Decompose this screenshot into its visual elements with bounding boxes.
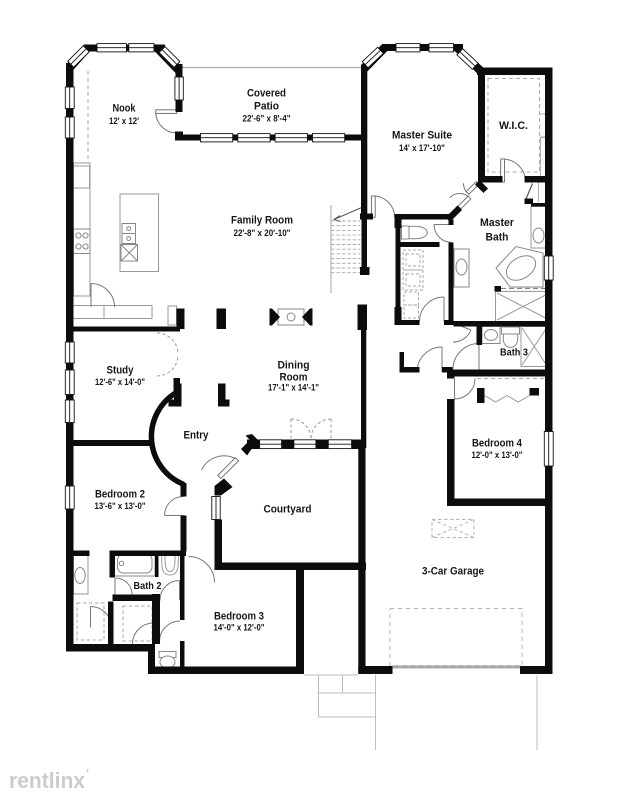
svg-text:14' x 17'-10": 14' x 17'-10" xyxy=(399,143,445,153)
svg-text:Master Suite: Master Suite xyxy=(392,130,452,142)
svg-text:3-Car Garage: 3-Car Garage xyxy=(422,566,484,578)
svg-text:Dining: Dining xyxy=(278,360,310,372)
svg-text:17'-1" x 14'-1": 17'-1" x 14'-1" xyxy=(268,383,319,393)
svg-text:Bedroom 2: Bedroom 2 xyxy=(95,489,145,501)
svg-text:13'-6" x 13'-0": 13'-6" x 13'-0" xyxy=(95,501,146,511)
svg-text:W.I.C.: W.I.C. xyxy=(499,120,528,132)
svg-text:22'-6" x 8'-4": 22'-6" x 8'-4" xyxy=(243,114,291,124)
svg-text:Patio: Patio xyxy=(254,101,279,113)
svg-text:Entry: Entry xyxy=(184,430,210,442)
svg-text:Study: Study xyxy=(107,365,135,377)
svg-text:Bath 2: Bath 2 xyxy=(134,581,162,592)
svg-text:rentlinx: rentlinx xyxy=(9,768,86,793)
svg-text:': ' xyxy=(86,766,89,781)
svg-text:22'-8" x 20'-10": 22'-8" x 20'-10" xyxy=(234,228,291,238)
svg-text:Master: Master xyxy=(480,217,515,229)
svg-text:Nook: Nook xyxy=(113,103,137,115)
svg-text:Bedroom 4: Bedroom 4 xyxy=(472,438,523,450)
svg-text:Courtyard: Courtyard xyxy=(264,504,312,516)
svg-text:Family Room: Family Room xyxy=(231,215,293,227)
svg-text:Bath: Bath xyxy=(486,232,509,244)
svg-text:12'-6" x 14'-0": 12'-6" x 14'-0" xyxy=(95,377,145,387)
svg-text:Bath 3: Bath 3 xyxy=(500,348,528,359)
svg-text:12' x 12': 12' x 12' xyxy=(109,116,139,126)
svg-text:Bedroom 3: Bedroom 3 xyxy=(214,611,264,623)
svg-text:12'-0" x 13'-0": 12'-0" x 13'-0" xyxy=(472,450,523,460)
svg-text:Covered: Covered xyxy=(247,88,286,100)
svg-text:14'-0" x 12'-0": 14'-0" x 12'-0" xyxy=(214,623,265,633)
